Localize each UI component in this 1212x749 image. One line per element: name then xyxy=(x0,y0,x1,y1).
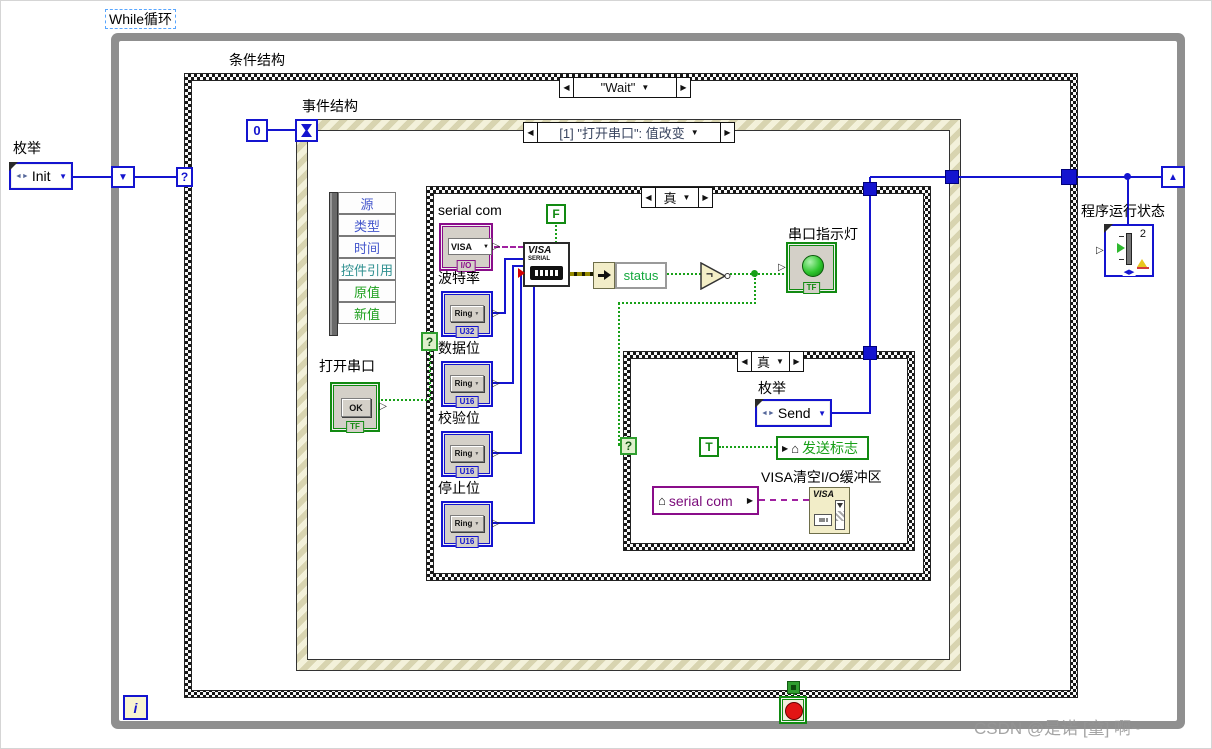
event-data-item[interactable]: 时间 xyxy=(338,236,396,258)
slider-pointer-icon xyxy=(1117,243,1125,253)
question-icon: ? xyxy=(181,170,188,184)
nested-case-next-icon[interactable]: ▶ xyxy=(789,352,803,371)
event-dropdown-icon[interactable]: ▼ xyxy=(691,128,699,137)
event-data-item[interactable]: 控件引用 xyxy=(338,258,396,280)
fold-corner xyxy=(9,162,18,171)
wire-branch-vert xyxy=(618,303,620,445)
ring-button[interactable]: Ring▼ xyxy=(450,445,484,462)
port-icon xyxy=(814,514,832,526)
event-selector-text: [1] "打开串口": 值改变 xyxy=(559,123,685,142)
fold-corner xyxy=(1104,224,1113,233)
wire-ok-button-h xyxy=(381,399,431,401)
wire-error-cluster xyxy=(569,272,595,276)
visa-resource-control[interactable]: VISA ▼ I/O ▷ xyxy=(439,223,493,271)
wire-true-constant xyxy=(719,446,776,448)
serial-led-label: 串口指示灯 xyxy=(788,226,858,242)
coercion-underline-icon xyxy=(1137,267,1149,269)
write-arrow-icon: ▶ xyxy=(782,444,788,453)
visa-clear-buffer-node[interactable]: VISA xyxy=(809,487,850,534)
watermark: CSDN @是诺 [童] 啊~ xyxy=(974,714,1141,739)
ring-button[interactable]: Ring▼ xyxy=(450,515,484,532)
wire-baud-v xyxy=(504,258,506,314)
question-icon: ? xyxy=(625,439,632,453)
case-selector-tunnel[interactable]: ? xyxy=(176,167,193,187)
init-enum-control[interactable]: ◄► Init ▼ xyxy=(9,162,73,190)
numeric-type-tag: U16 xyxy=(456,396,479,408)
baud-rate-label: 波特率 xyxy=(438,270,480,286)
nested-case-selector-text: 真 xyxy=(757,352,770,371)
serial-com-label: serial com xyxy=(438,202,502,218)
wire-parity-v xyxy=(520,272,522,454)
home-icon: ⌂ xyxy=(658,493,666,508)
wire-status-to-not xyxy=(667,273,701,275)
output-arrow-icon: ▷ xyxy=(379,402,387,412)
serial-com-local-name: serial com xyxy=(669,493,733,509)
boolean-type-tag: TF xyxy=(803,282,821,294)
parity-label: 校验位 xyxy=(438,410,480,426)
not-gate-icon xyxy=(700,262,732,290)
unbundle-by-name-node[interactable] xyxy=(593,262,615,289)
nested-case-selector[interactable]: ◀ 真 ▼ ▶ xyxy=(737,351,804,372)
stop-icon xyxy=(785,702,803,720)
stop-bits-label: 停止位 xyxy=(438,480,480,496)
numeric-type-tag: U32 xyxy=(456,326,479,338)
send-enum-value: Send xyxy=(778,405,811,421)
stop-bits-ring[interactable]: Ring▼ U16 ▷ xyxy=(441,501,493,547)
tunnel-case-structure-bottom[interactable] xyxy=(787,681,800,694)
dropdown-icon[interactable]: ▼ xyxy=(483,244,489,250)
visa-node-subtitle: SERIAL xyxy=(528,256,550,262)
fold-corner xyxy=(755,399,764,408)
arrow-head-icon xyxy=(604,270,611,280)
run-state-value: 2 xyxy=(1140,228,1146,240)
false-constant[interactable]: F xyxy=(546,204,566,224)
while-loop-label: While循环 xyxy=(105,9,176,29)
event-data-item[interactable]: 原值 xyxy=(338,280,396,302)
send-flag-local-variable[interactable]: ▶ ⌂ 发送标志 xyxy=(776,436,869,460)
send-enum-label: 枚举 xyxy=(758,380,786,396)
send-flag-name: 发送标志 xyxy=(802,438,858,458)
init-enum-value: Init xyxy=(32,168,51,184)
inner-case-selector-tunnel[interactable]: ? xyxy=(421,332,438,351)
output-arrow-icon: ▷ xyxy=(492,519,500,529)
nested-case-selector-tunnel[interactable]: ? xyxy=(620,437,637,455)
labview-block-diagram: While循环 条件结构 事件结构 ◀ "Wait" ▼ ▶ ◀ [ xyxy=(0,0,1212,749)
true-constant[interactable]: T xyxy=(699,437,719,457)
visa-resource-field[interactable]: VISA ▼ xyxy=(448,238,492,255)
right-shift-register[interactable]: ▲ xyxy=(1161,166,1185,188)
open-serial-button-terminal[interactable]: OK TF ▷ xyxy=(330,382,380,432)
tunnel-inner-case-top[interactable] xyxy=(863,182,877,196)
inner-case-selector-text: 真 xyxy=(664,188,677,207)
hourglass-icon xyxy=(297,121,316,140)
stop-button-terminal[interactable] xyxy=(779,696,807,724)
data-bits-ring[interactable]: Ring▼ U16 ▷ xyxy=(441,361,493,407)
inner-case-prev-icon[interactable]: ◀ xyxy=(642,188,656,207)
iteration-i: i xyxy=(134,700,138,716)
boolean-type-tag: TF xyxy=(346,421,364,433)
enum-dropdown-icon[interactable]: ▼ xyxy=(59,172,67,181)
output-arrow-icon: ▷ xyxy=(492,379,500,389)
serial-led-terminal[interactable]: TF ▷ xyxy=(786,242,837,293)
inner-case-dropdown-icon[interactable]: ▼ xyxy=(683,193,691,202)
iteration-terminal[interactable]: i xyxy=(123,695,148,720)
wire-databits-v xyxy=(512,265,514,384)
inner-case-next-icon[interactable]: ▶ xyxy=(698,188,712,207)
nested-case-prev-icon[interactable]: ◀ xyxy=(738,352,752,371)
event-selector[interactable]: ◀ [1] "打开串口": 值改变 ▼ ▶ xyxy=(523,122,735,143)
nested-case-dropdown-icon[interactable]: ▼ xyxy=(776,357,784,366)
output-arrow-icon: ▷ xyxy=(492,242,500,252)
visa-clear-label: VISA清空I/O缓冲区 xyxy=(761,469,882,485)
dip-switch-icon xyxy=(530,266,563,280)
event-next-icon[interactable]: ▶ xyxy=(720,123,734,142)
timeout-constant[interactable]: 0 xyxy=(246,119,268,142)
wire-serial-local-to-clear xyxy=(759,499,809,501)
inner-case-selector[interactable]: ◀ 真 ▼ ▶ xyxy=(641,187,713,208)
case-selector-text: "Wait" xyxy=(601,80,636,95)
case-next-icon[interactable]: ▶ xyxy=(676,78,690,97)
shift-up-icon: ▲ xyxy=(1168,172,1178,183)
event-data-item[interactable]: 新值 xyxy=(338,302,396,324)
event-structure-label: 事件结构 xyxy=(302,98,358,114)
wire-branch-left xyxy=(618,302,756,304)
coercion-icon xyxy=(1137,259,1147,267)
wire-junction-run-state xyxy=(1124,173,1131,180)
output-arrow-icon: ▷ xyxy=(492,309,500,319)
led-icon xyxy=(802,255,824,277)
status-element[interactable]: status xyxy=(615,262,667,289)
wire-send-enum-out xyxy=(832,412,871,414)
shift-down-icon: ▼ xyxy=(118,172,128,183)
event-data-item[interactable]: 类型 xyxy=(338,214,396,236)
ring-button[interactable]: Ring▼ xyxy=(450,375,484,392)
tunnel-case-structure-right[interactable] xyxy=(1061,169,1077,185)
init-enum-label: 枚举 xyxy=(13,140,41,156)
question-icon: ? xyxy=(426,335,433,349)
timeout-hourglass-tunnel[interactable] xyxy=(295,119,318,142)
left-shift-register[interactable]: ▼ xyxy=(111,166,135,188)
run-state-label: 程序运行状态 xyxy=(1081,203,1165,219)
ok-button[interactable]: OK xyxy=(341,398,371,417)
wire-shift-register-to-case-selector xyxy=(135,176,178,178)
wire-stopbits-v xyxy=(533,286,535,524)
enum-dropdown-icon[interactable]: ▼ xyxy=(818,409,826,418)
open-serial-label: 打开串口 xyxy=(319,358,375,374)
input-arrow-icon: ▷ xyxy=(778,263,786,273)
numeric-type-tag: U16 xyxy=(456,536,479,548)
wire-ok-button-v xyxy=(429,350,431,400)
enum-glyph-icon: ◄► xyxy=(15,173,29,180)
wire-baud-in xyxy=(504,258,524,260)
enum-glyph-icon: ◄► xyxy=(761,410,775,417)
not-sign: ¬ xyxy=(706,267,713,281)
wire-timeout-constant xyxy=(267,129,297,131)
tunnel-nested-case-top[interactable] xyxy=(863,346,877,360)
slider-track-icon xyxy=(1126,233,1132,265)
not-gate[interactable]: ¬ xyxy=(700,262,732,290)
required-input-arrow-icon xyxy=(518,268,525,278)
serial-com-local-variable[interactable]: ⌂ serial com ▶ xyxy=(652,486,759,515)
wire-init-enum-to-shift-register xyxy=(73,176,113,178)
event-prev-icon[interactable]: ◀ xyxy=(524,123,538,142)
case-structure-label: 条件结构 xyxy=(229,52,285,68)
wire-false-constant xyxy=(555,225,557,243)
visa-node-title: VISA xyxy=(528,245,551,256)
home-icon: ⌂ xyxy=(791,441,799,456)
flush-bar-icon xyxy=(835,500,845,530)
read-arrow-icon: ▶ xyxy=(747,496,753,505)
ring-button[interactable]: Ring▼ xyxy=(450,305,484,322)
run-state-terminal[interactable]: 2 ◀▶ ▷ xyxy=(1104,224,1154,277)
output-arrow-icon: ▷ xyxy=(492,449,500,459)
case-dropdown-icon[interactable]: ▼ xyxy=(641,83,649,92)
input-arrow-icon: ▷ xyxy=(1096,246,1104,256)
visa-configure-serial-node[interactable]: VISA SERIAL xyxy=(523,242,570,287)
slide-glyph-icon: ◀▶ xyxy=(1123,268,1136,276)
send-enum-constant[interactable]: ◄► Send ▼ xyxy=(755,399,832,427)
case-selector[interactable]: ◀ "Wait" ▼ ▶ xyxy=(559,77,691,98)
slider-tick-icon xyxy=(1119,236,1124,237)
parity-ring[interactable]: Ring▼ U16 ▷ xyxy=(441,431,493,477)
tunnel-event-structure-right[interactable] xyxy=(945,170,959,184)
case-prev-icon[interactable]: ◀ xyxy=(560,78,574,97)
visa-clear-title: VISA xyxy=(813,489,834,499)
wire-send-enum-vertical xyxy=(869,177,871,414)
baud-rate-ring[interactable]: Ring▼ U32 ▷ xyxy=(441,291,493,337)
event-data-node-rail[interactable] xyxy=(329,192,338,336)
event-data-item[interactable]: 源 xyxy=(338,192,396,214)
slider-tick-icon xyxy=(1119,259,1124,260)
numeric-type-tag: U16 xyxy=(456,466,479,478)
wire-state-to-right-shift-register xyxy=(870,176,1166,178)
wire-junction-green xyxy=(751,270,758,277)
wire-branch-down xyxy=(754,275,756,304)
data-bits-label: 数据位 xyxy=(438,340,480,356)
